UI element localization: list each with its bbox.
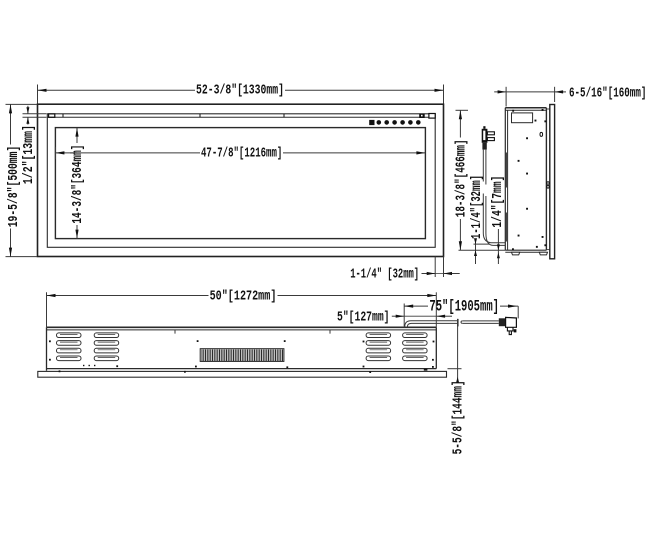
svg-text:14-3/8"[364mm]: 14-3/8"[364mm] — [70, 145, 86, 224]
svg-text:52-3/8"[1330mm]: 52-3/8"[1330mm] — [196, 82, 284, 98]
svg-text:1/4"[7mm]: 1/4"[7mm] — [490, 176, 506, 228]
svg-text:5"[127mm]: 5"[127mm] — [337, 309, 390, 325]
svg-text:6-5/16"[160mm]: 6-5/16"[160mm] — [569, 85, 646, 101]
svg-text:19-5/8"[500mm]: 19-5/8"[500mm] — [6, 146, 22, 228]
svg-text:5-5/8"[144mm]: 5-5/8"[144mm] — [451, 380, 467, 454]
svg-text:1-1/4" [32mm]: 1-1/4" [32mm] — [350, 267, 419, 283]
svg-text:75"[1905mm]: 75"[1905mm] — [429, 297, 499, 315]
svg-text:47-7/8"[1216mm]: 47-7/8"[1216mm] — [201, 146, 282, 162]
svg-text:1-1/4"[32mm]: 1-1/4"[32mm] — [469, 175, 485, 239]
svg-text:50"[1272mm]: 50"[1272mm] — [210, 289, 277, 305]
svg-text:18-3/8"[466mm]: 18-3/8"[466mm] — [454, 140, 470, 218]
svg-text:1/2"[13mm]: 1/2"[13mm] — [21, 125, 37, 184]
